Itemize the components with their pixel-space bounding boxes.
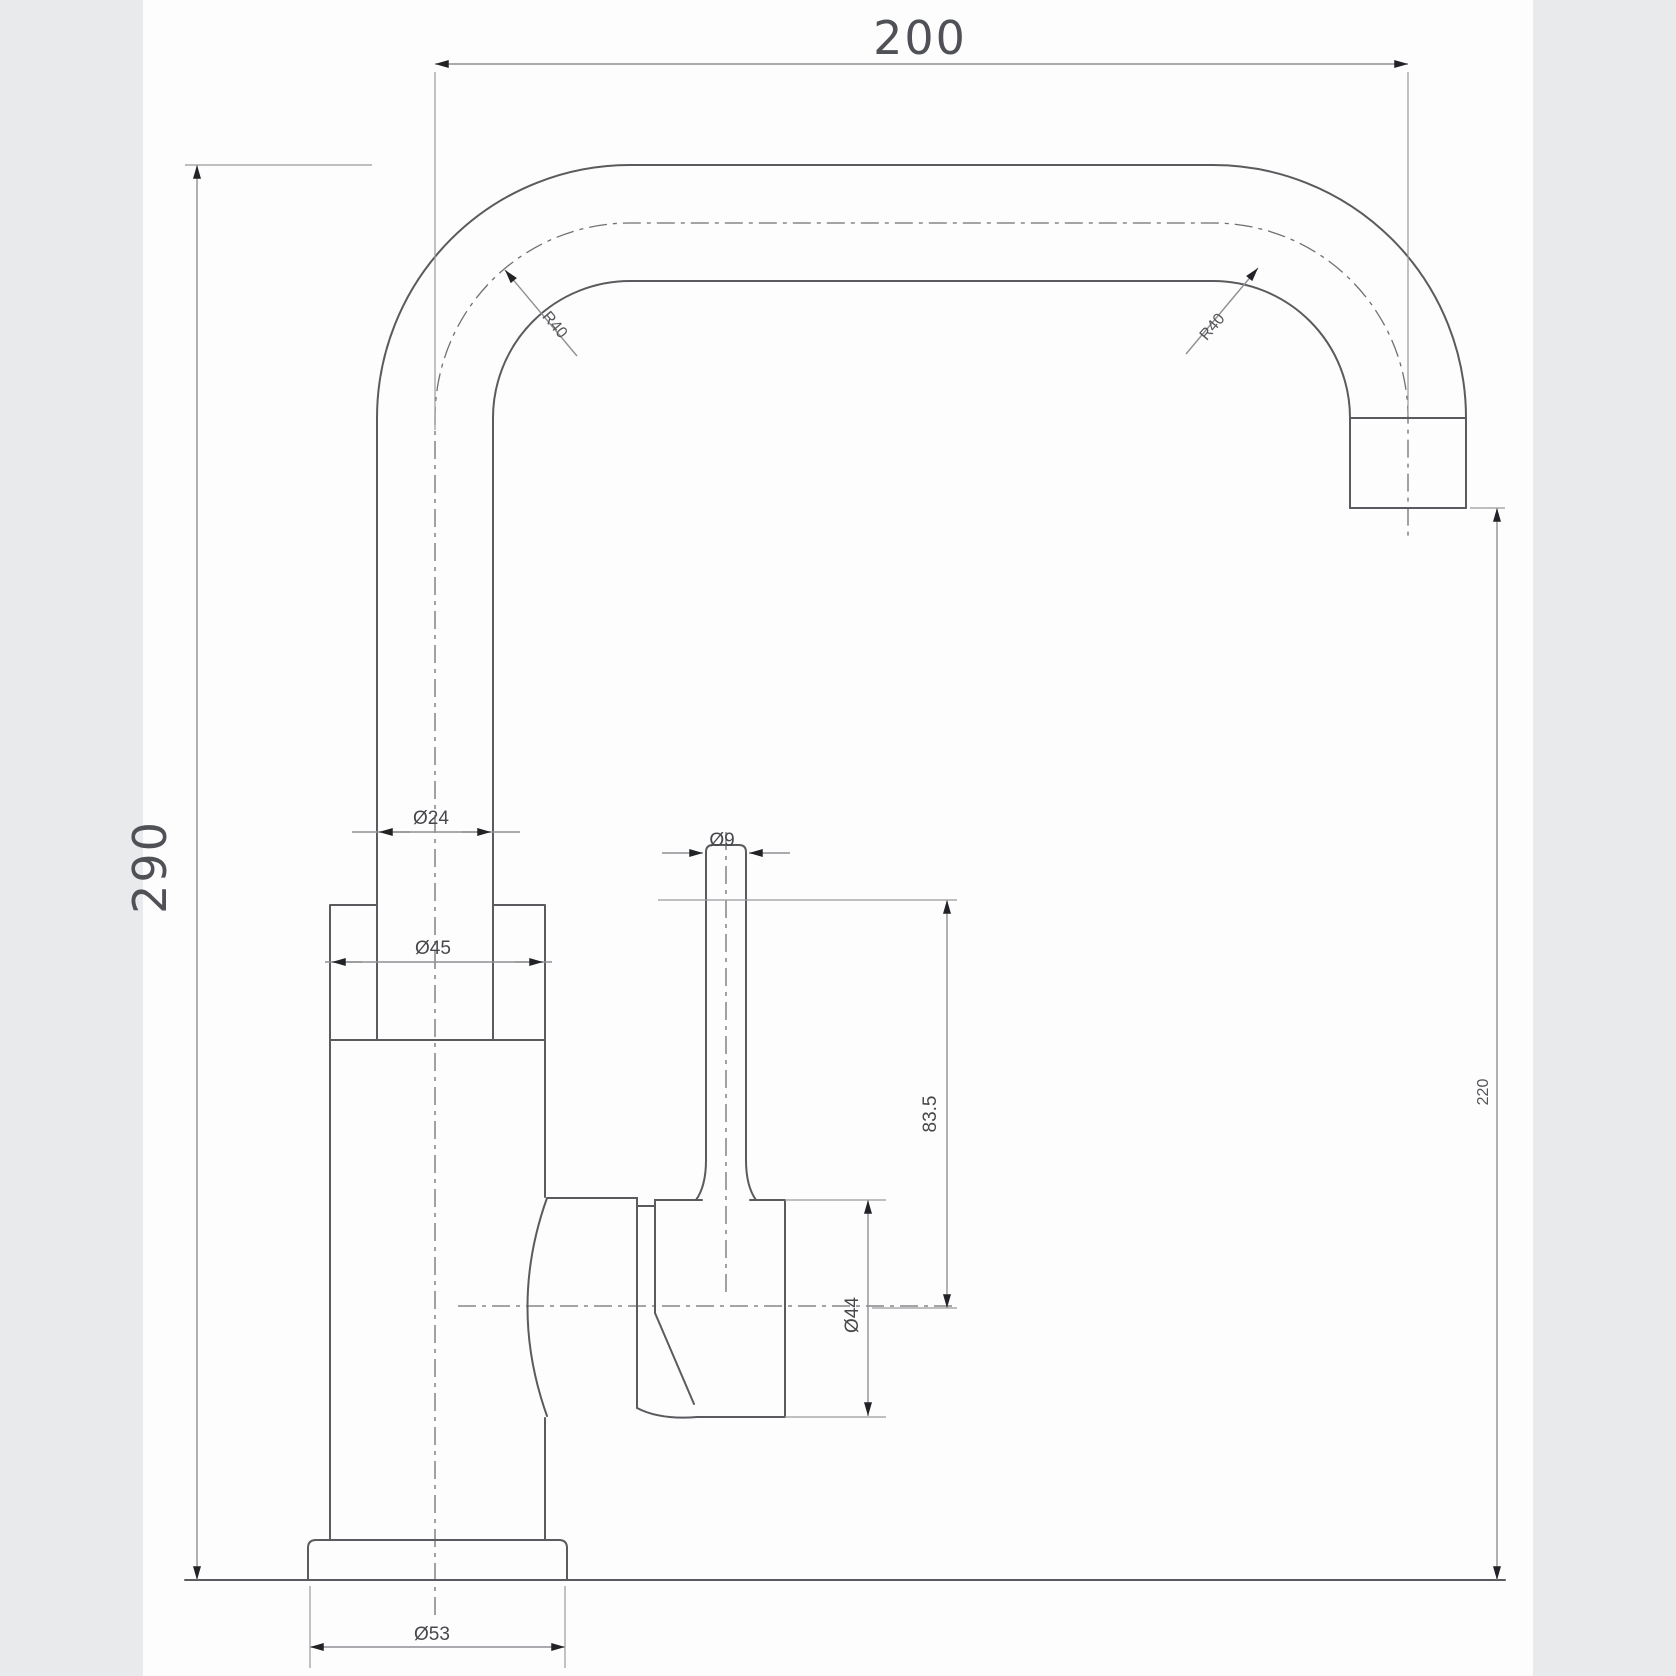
cartridge-dome-top [547,1198,637,1206]
faucet-outline [185,165,1505,1580]
dim-lever-diameter-label: Ø9 [709,830,734,851]
dim-width-label: 200 [873,11,967,65]
dim-base-diameter-label: Ø53 [414,1624,450,1645]
dim-radius-left-label: R40 [538,308,570,341]
centerlines [435,223,1408,1615]
body-column [330,905,545,1540]
cartridge-ring-bottom [637,1408,697,1418]
cartridge-joint-diagonal [655,1313,694,1404]
cartridge-dome-cap [528,1198,548,1416]
dim-height-label: 290 [123,820,177,914]
dim-tube-diameter-label: Ø24 [413,808,449,829]
cartridge-housing [655,1200,785,1417]
dim-body-diameter-label: Ø45 [415,938,451,959]
dim-cartridge-diameter-label: Ø44 [842,1297,863,1333]
dim-lever-height-label: 83.5 [920,1096,941,1133]
dim-outlet-height-label: 220 [1475,1079,1492,1106]
spout-outer-contour [377,165,1466,1040]
spout-centerline [435,223,1408,1615]
dim-radius-right-label: R40 [1197,310,1229,343]
cartridge-ring [637,1206,655,1408]
faucet-technical-drawing: 200 290 220 R40 R40 Ø24 Ø45 Ø9 Ø44 [0,0,1676,1676]
base-flange [308,1540,567,1580]
spout-inner-contour [493,281,1350,1040]
